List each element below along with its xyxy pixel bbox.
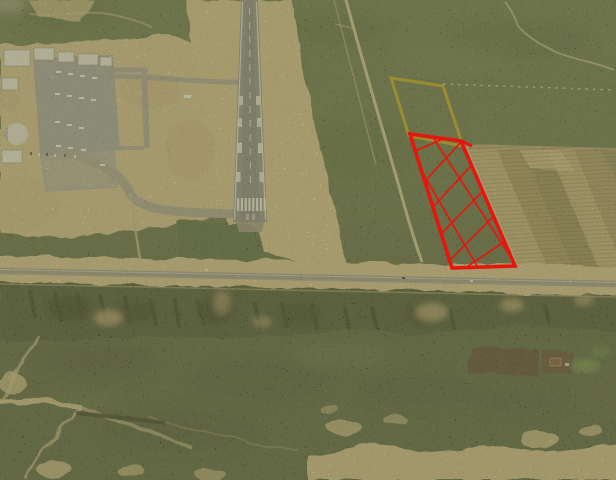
aerial-photo-canvas — [0, 0, 616, 480]
photo-grain-light — [0, 0, 616, 480]
aerial-photo — [0, 0, 616, 480]
